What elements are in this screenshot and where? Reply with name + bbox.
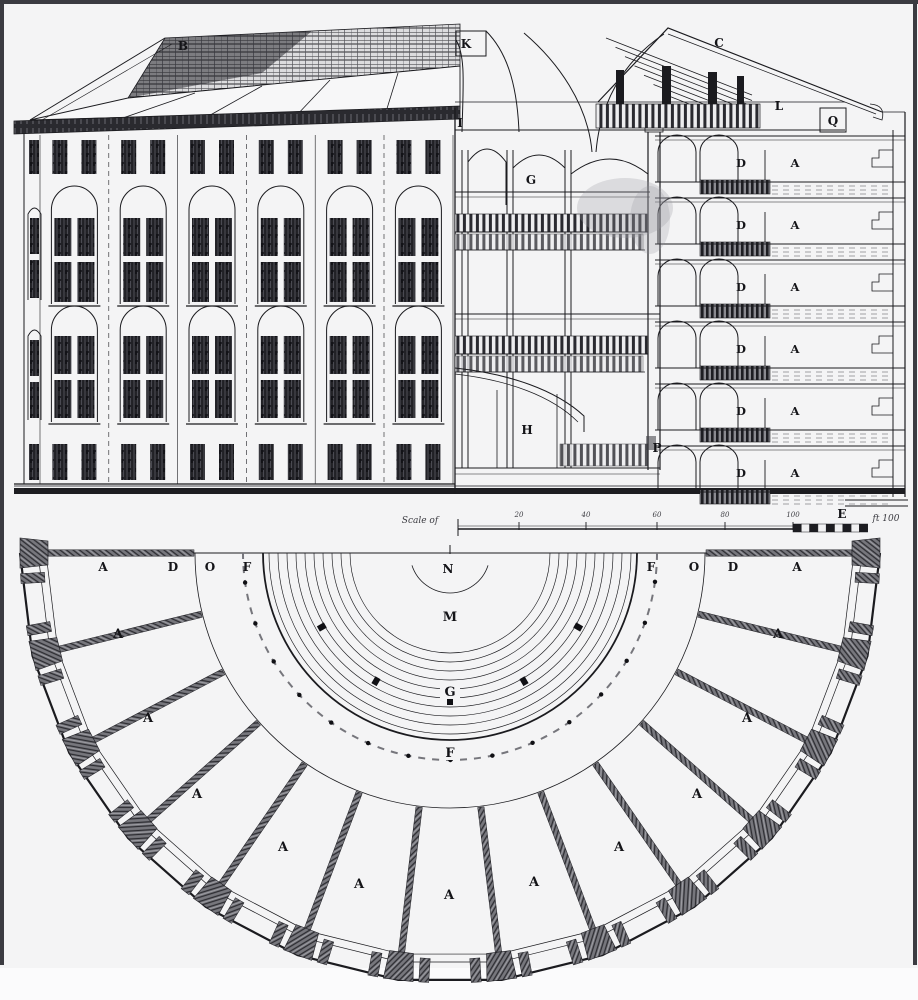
engraving-panopticon-sheet: DADADADADADABKCIGLQHPE 20406080100Scale … xyxy=(0,0,918,1000)
label-f: F xyxy=(647,560,656,574)
label-a: A xyxy=(443,888,455,903)
label-a: A xyxy=(142,711,154,726)
label-80: 80 xyxy=(721,511,730,519)
label-a: A xyxy=(790,404,801,418)
label-c: C xyxy=(714,36,724,50)
label-g: G xyxy=(444,685,455,700)
label-a: A xyxy=(790,218,801,232)
label-e: E xyxy=(837,507,846,521)
window-pier xyxy=(470,958,481,983)
label-ft 100: ft 100 xyxy=(872,514,900,524)
label-f: F xyxy=(445,746,455,761)
label-d: D xyxy=(736,156,746,170)
label-a: A xyxy=(791,560,802,574)
label-a: A xyxy=(790,342,801,356)
label-a: A xyxy=(772,627,784,642)
label-a: A xyxy=(613,840,625,855)
label-a: A xyxy=(741,711,753,726)
label-p: P xyxy=(652,441,661,455)
label-40: 40 xyxy=(581,511,591,519)
label-a: A xyxy=(528,875,540,890)
label-d: D xyxy=(736,280,746,294)
label-a: A xyxy=(353,877,365,892)
label-scale of: Scale of xyxy=(402,516,440,526)
label-d: D xyxy=(736,218,746,232)
label-60: 60 xyxy=(653,511,662,519)
label-a: A xyxy=(277,840,289,855)
label-100: 100 xyxy=(786,511,800,519)
label-a: A xyxy=(790,466,801,480)
label-d: D xyxy=(728,560,738,574)
label-a: A xyxy=(112,627,124,642)
label-h: H xyxy=(521,423,532,437)
window-pier xyxy=(20,572,45,583)
label-b: B xyxy=(178,39,188,53)
label-k: K xyxy=(461,37,472,51)
label-o: O xyxy=(205,560,215,574)
label-n: N xyxy=(443,562,454,576)
label-a: A xyxy=(97,560,108,574)
label-a: A xyxy=(790,156,801,170)
window-pier xyxy=(855,572,880,583)
label-o: O xyxy=(689,560,699,574)
label-d: D xyxy=(168,560,178,574)
label-a: A xyxy=(191,787,203,802)
label-a: A xyxy=(790,280,801,294)
panopticon-drawing: DADADADADADABKCIGLQHPE 20406080100Scale … xyxy=(0,0,918,1000)
label-q: Q xyxy=(828,114,838,128)
window-pier xyxy=(419,958,430,983)
label-d: D xyxy=(736,342,746,356)
label-i: I xyxy=(457,116,463,130)
label-m: M xyxy=(443,610,457,625)
label-d: D xyxy=(736,404,746,418)
label-l: L xyxy=(775,99,784,113)
label-20: 20 xyxy=(514,511,524,519)
label-d: D xyxy=(736,466,746,480)
label-a: A xyxy=(691,787,703,802)
paper-background xyxy=(0,0,918,1000)
label-f: F xyxy=(243,560,252,574)
label-g: G xyxy=(526,173,536,187)
